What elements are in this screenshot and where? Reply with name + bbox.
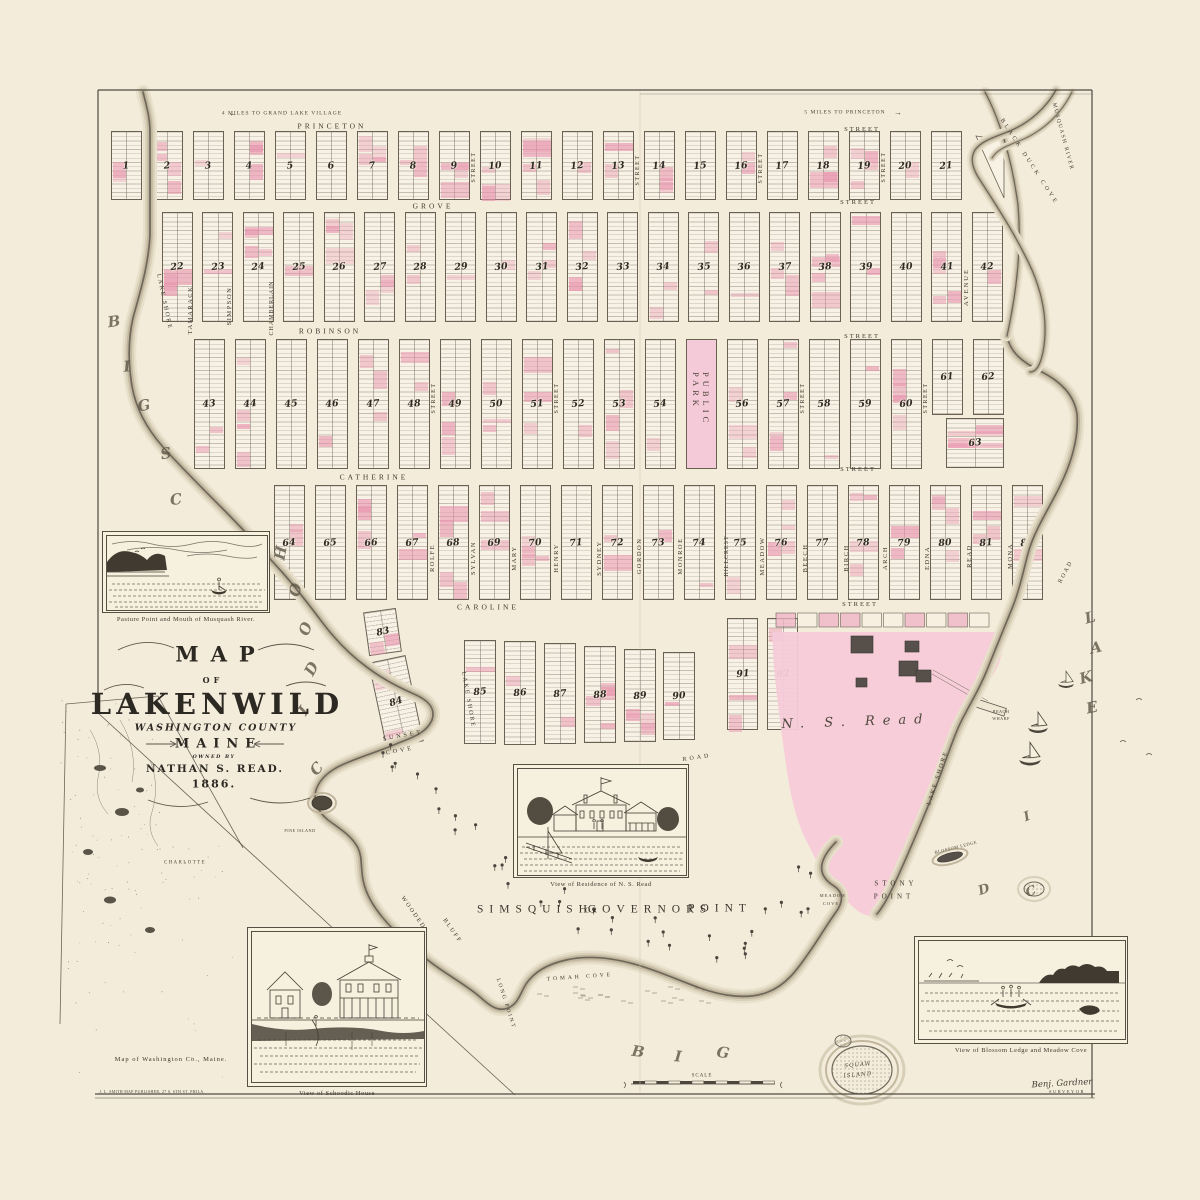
plat-block-13: 13 bbox=[603, 131, 634, 200]
plat-block-28: 28 bbox=[405, 212, 436, 322]
block-number: 35 bbox=[696, 261, 710, 273]
sold-lot-highlight bbox=[771, 242, 784, 251]
sold-lot-highlight bbox=[407, 245, 420, 252]
plat-block-24: 24 bbox=[243, 212, 274, 322]
sold-lot-highlight bbox=[360, 355, 373, 368]
block-number: 11 bbox=[529, 159, 543, 171]
sold-lot-highlight bbox=[946, 550, 959, 562]
sold-lot-highlight bbox=[850, 564, 863, 576]
block-number: 57 bbox=[776, 398, 790, 410]
sold-lot-highlight bbox=[113, 171, 126, 182]
block-number: 28 bbox=[413, 261, 427, 273]
plat-block-49: 49 bbox=[440, 339, 471, 469]
sold-lot-highlight bbox=[374, 371, 387, 389]
plat-block-39: 39 bbox=[850, 212, 881, 322]
block-number: 20 bbox=[898, 159, 912, 171]
vignette-blossom-ledge: View of Blossom Ledge and Meadow Cove bbox=[914, 936, 1128, 1044]
block-number: 56 bbox=[735, 398, 749, 410]
sold-lot-highlight bbox=[237, 424, 250, 429]
plat-block-22: 22 bbox=[162, 212, 193, 322]
plat-block-75: 75 bbox=[725, 485, 756, 600]
plat-block-80: 80 bbox=[930, 485, 961, 600]
block-number: 4 bbox=[245, 160, 253, 172]
sold-lot-highlight bbox=[786, 275, 799, 292]
sold-lot-highlight bbox=[769, 628, 782, 642]
plat-block-62: 62 bbox=[973, 339, 1004, 415]
sold-lot-highlight bbox=[399, 549, 427, 560]
sold-lot-highlight bbox=[824, 146, 837, 158]
plat-block-60: 60 bbox=[891, 339, 922, 469]
sold-lot-highlight bbox=[812, 273, 825, 282]
sold-lot-highlight bbox=[583, 251, 596, 260]
block-number: 77 bbox=[815, 536, 829, 548]
block-number: 5 bbox=[286, 160, 294, 172]
plat-block-1: 1 bbox=[111, 131, 142, 200]
sold-lot-highlight bbox=[893, 415, 906, 430]
sold-lot-highlight bbox=[414, 146, 427, 161]
block-number: 13 bbox=[611, 159, 625, 171]
sold-lot-highlight bbox=[782, 525, 795, 530]
plat-block-68: 68 bbox=[438, 485, 469, 600]
sold-lot-highlight bbox=[237, 452, 250, 467]
plat-block-14: 14 bbox=[644, 131, 675, 200]
block-number: 41 bbox=[939, 261, 953, 273]
vignette-caption: View of Blossom Ledge and Meadow Cove bbox=[955, 1047, 1087, 1054]
sold-lot-highlight bbox=[466, 667, 495, 672]
sold-lot-highlight bbox=[237, 358, 250, 365]
sold-lot-highlight bbox=[601, 723, 615, 730]
plat-block-43: 43 bbox=[194, 339, 225, 469]
plat-block-73: 73 bbox=[643, 485, 674, 600]
block-number: 84 bbox=[388, 695, 404, 709]
sold-lot-highlight bbox=[245, 227, 273, 236]
sold-lot-highlight bbox=[358, 506, 371, 520]
sold-lot-highlight bbox=[401, 352, 429, 364]
sold-lot-highlight bbox=[641, 723, 655, 735]
block-number: 64 bbox=[282, 536, 296, 548]
sold-lot-highlight bbox=[441, 182, 469, 198]
sold-lot-highlight bbox=[366, 290, 379, 305]
sold-lot-highlight bbox=[374, 412, 387, 421]
plat-block-71: 71 bbox=[561, 485, 592, 600]
sold-lot-highlight bbox=[824, 172, 837, 182]
sold-lot-highlight bbox=[579, 425, 592, 437]
sold-lot-highlight bbox=[569, 221, 582, 239]
block-number: 26 bbox=[332, 261, 346, 273]
sold-lot-highlight bbox=[729, 695, 757, 700]
block-number: 63 bbox=[968, 437, 982, 449]
plat-block-88: 88 bbox=[584, 646, 616, 743]
block-number: 73 bbox=[651, 536, 665, 548]
sold-lot-highlight bbox=[852, 216, 880, 225]
sold-lot-highlight bbox=[277, 153, 305, 158]
sold-lot-highlight bbox=[340, 223, 353, 240]
plat-block-76: 76 bbox=[766, 485, 797, 600]
block-number: 45 bbox=[284, 398, 298, 410]
plat-block-87: 87 bbox=[544, 643, 576, 744]
plat-block-72: 72 bbox=[602, 485, 633, 600]
block-number: 17 bbox=[775, 159, 789, 171]
block-number: 12 bbox=[570, 159, 584, 171]
sold-lot-highlight bbox=[850, 493, 863, 501]
block-number: 49 bbox=[448, 398, 462, 410]
sold-lot-highlight bbox=[483, 419, 511, 423]
plat-block-50: 50 bbox=[481, 339, 512, 469]
block-number: 7 bbox=[368, 160, 376, 172]
block-number: 37 bbox=[777, 261, 791, 273]
plat-block-58: 58 bbox=[809, 339, 840, 469]
sold-lot-highlight bbox=[729, 715, 742, 732]
plat-block-25: 25 bbox=[283, 212, 314, 322]
block-number: 52 bbox=[571, 398, 585, 410]
plat-block-48: 48 bbox=[399, 339, 430, 469]
plat-block-84: 84 bbox=[368, 655, 423, 749]
block-number: 76 bbox=[774, 536, 788, 548]
block-number: 78 bbox=[856, 536, 870, 548]
sold-lot-highlight bbox=[237, 410, 250, 421]
sold-lot-highlight bbox=[864, 495, 877, 500]
plat-block-26: 26 bbox=[324, 212, 355, 322]
sold-lot-highlight bbox=[442, 422, 455, 435]
sold-lot-highlight bbox=[561, 717, 575, 727]
block-number: 69 bbox=[487, 536, 501, 548]
plat-block-7: 7 bbox=[357, 131, 388, 200]
block-number: 74 bbox=[692, 536, 706, 548]
sold-lot-highlight bbox=[250, 141, 263, 155]
block-number: 1 bbox=[122, 160, 130, 172]
plat-block-41: 41 bbox=[931, 212, 962, 322]
block-number: 24 bbox=[251, 261, 265, 273]
sold-lot-highlight bbox=[483, 425, 496, 432]
plat-block-51: 51 bbox=[522, 339, 553, 469]
plat-block-11: 11 bbox=[521, 131, 552, 200]
plat-block-57: 57 bbox=[768, 339, 799, 469]
sold-lot-highlight bbox=[626, 709, 640, 721]
block-number: 89 bbox=[633, 689, 647, 701]
block-number: 18 bbox=[816, 159, 830, 171]
sold-lot-highlight bbox=[447, 275, 475, 279]
plat-block-42: 42 bbox=[972, 212, 1003, 322]
sold-lot-highlight bbox=[440, 520, 453, 537]
block-number: 48 bbox=[407, 398, 421, 410]
sold-lot-highlight bbox=[481, 492, 494, 504]
plat-block-54: 54 bbox=[645, 339, 676, 469]
vignette-caption: View of Schoodic House bbox=[299, 1090, 375, 1097]
sold-lot-highlight bbox=[506, 676, 520, 686]
plat-block-35: 35 bbox=[688, 212, 719, 322]
sold-lot-highlight bbox=[442, 437, 455, 455]
sold-lot-highlight bbox=[743, 447, 756, 457]
block-number: 30 bbox=[494, 261, 508, 273]
block-number: 87 bbox=[553, 687, 567, 699]
sold-lot-highlight bbox=[933, 296, 946, 305]
sold-lot-highlight bbox=[569, 282, 582, 291]
plat-block-8: 8 bbox=[398, 131, 429, 200]
plat-block-92: 92 bbox=[767, 618, 798, 730]
sold-lot-highlight bbox=[536, 556, 549, 561]
block-number: 86 bbox=[513, 687, 527, 699]
block-number: 79 bbox=[897, 536, 911, 548]
schoodic-house-engraving bbox=[251, 931, 425, 1083]
blossom-ledge-engraving bbox=[918, 940, 1126, 1040]
plat-block-78: 78 bbox=[848, 485, 879, 600]
block-number: 91 bbox=[735, 668, 749, 680]
plat-block-65: 65 bbox=[315, 485, 346, 600]
plat-block-21: 21 bbox=[931, 131, 962, 200]
plat-block-19: 19 bbox=[849, 131, 880, 200]
sold-lot-highlight bbox=[660, 182, 673, 190]
block-number: 38 bbox=[818, 261, 832, 273]
sold-lot-highlight bbox=[647, 438, 660, 451]
vignette-caption: Pasture Point and Mouth of Musquash Rive… bbox=[117, 616, 255, 623]
block-number: 61 bbox=[940, 371, 954, 383]
block-number: 40 bbox=[899, 261, 913, 273]
plat-block-18: 18 bbox=[808, 131, 839, 200]
sold-lot-highlight bbox=[537, 180, 550, 195]
sold-lot-highlight bbox=[664, 282, 677, 290]
plat-block-37: 37 bbox=[769, 212, 800, 322]
plat-block-38: 38 bbox=[810, 212, 841, 322]
plat-block-29: 29 bbox=[445, 212, 476, 322]
sold-lot-highlight bbox=[812, 292, 840, 308]
block-number: 36 bbox=[737, 261, 751, 273]
plat-block-46: 46 bbox=[317, 339, 348, 469]
sold-lot-highlight bbox=[606, 415, 619, 432]
plat-block-69: 69 bbox=[479, 485, 510, 600]
sold-lot-highlight bbox=[729, 425, 757, 438]
block-number: 59 bbox=[858, 398, 872, 410]
sold-lot-highlight bbox=[1014, 496, 1042, 508]
sold-lot-highlight bbox=[482, 184, 510, 201]
residence-engraving bbox=[517, 768, 687, 876]
map-canvas: 1234567891011121314151617181920212223242… bbox=[0, 0, 1200, 1200]
block-number: 88 bbox=[593, 688, 607, 700]
sold-lot-highlight bbox=[415, 382, 428, 392]
block-number: 33 bbox=[615, 261, 629, 273]
plat-block-85: 85 bbox=[464, 640, 496, 744]
sold-lot-highlight bbox=[407, 275, 420, 284]
plat-block-82: 82 bbox=[1012, 485, 1043, 600]
block-number: 2 bbox=[163, 160, 171, 172]
block-number: 50 bbox=[489, 398, 503, 410]
sold-lot-highlight bbox=[782, 500, 795, 510]
sold-lot-highlight bbox=[219, 232, 232, 239]
sold-lot-highlight bbox=[891, 548, 904, 558]
block-number: 27 bbox=[372, 261, 386, 273]
block-number: 42 bbox=[980, 261, 994, 273]
plat-block-27: 27 bbox=[364, 212, 395, 322]
plat-block-67: 67 bbox=[397, 485, 428, 600]
plat-block-77: 77 bbox=[807, 485, 838, 600]
plat-block-3: 3 bbox=[193, 131, 224, 200]
plat-block-10: 10 bbox=[480, 131, 511, 200]
block-number: 43 bbox=[202, 398, 216, 410]
plat-block-79: 79 bbox=[889, 485, 920, 600]
sold-lot-highlight bbox=[606, 349, 619, 353]
plat-block-33: 33 bbox=[607, 212, 638, 322]
plat-block-5: 5 bbox=[275, 131, 306, 200]
plat-block-91: 91 bbox=[727, 618, 758, 730]
sold-lot-highlight bbox=[386, 732, 404, 743]
sold-lot-highlight bbox=[770, 436, 783, 451]
block-number: 31 bbox=[534, 261, 548, 273]
plat-block-90: 90 bbox=[663, 652, 695, 740]
sold-lot-highlight bbox=[665, 702, 679, 706]
block-number: 29 bbox=[453, 261, 467, 273]
block-number: 65 bbox=[323, 536, 337, 548]
sold-lot-highlight bbox=[700, 583, 713, 588]
block-number: 32 bbox=[575, 261, 589, 273]
sold-lot-highlight bbox=[946, 508, 959, 524]
plat-block-31: 31 bbox=[526, 212, 557, 322]
sold-lot-highlight bbox=[851, 148, 864, 159]
block-number: 80 bbox=[938, 536, 952, 548]
sold-lot-highlight bbox=[729, 645, 757, 659]
block-number: 54 bbox=[653, 398, 667, 410]
plat-block-32: 32 bbox=[567, 212, 598, 322]
plat-block-23: 23 bbox=[202, 212, 233, 322]
plat-block-4: 4 bbox=[234, 131, 265, 200]
sold-lot-highlight bbox=[851, 181, 864, 189]
plat-block-53: 53 bbox=[604, 339, 635, 469]
plat-block-70: 70 bbox=[520, 485, 551, 600]
plat-block-9: 9 bbox=[439, 131, 470, 200]
sold-lot-highlight bbox=[786, 291, 799, 296]
plat-block-63: 63 bbox=[946, 418, 1004, 468]
block-number: 72 bbox=[610, 536, 624, 548]
plat-block-52: 52 bbox=[563, 339, 594, 469]
block-number: 71 bbox=[569, 536, 583, 548]
block-number: 60 bbox=[899, 398, 913, 410]
sold-lot-highlight bbox=[524, 357, 552, 373]
block-number: 62 bbox=[981, 371, 995, 383]
sold-lot-highlight bbox=[440, 572, 453, 586]
block-number: 15 bbox=[693, 159, 707, 171]
sold-lot-highlight bbox=[1014, 549, 1042, 562]
block-number: 9 bbox=[450, 160, 458, 172]
sold-lot-highlight bbox=[381, 280, 394, 294]
sold-lot-highlight bbox=[454, 582, 467, 598]
block-number: 66 bbox=[364, 536, 378, 548]
plat-block-2: 2 bbox=[152, 131, 183, 200]
plat-block-20: 20 bbox=[890, 131, 921, 200]
block-number: 92 bbox=[775, 668, 789, 680]
vignette-pasture-point: Pasture Point and Mouth of Musquash Rive… bbox=[102, 531, 270, 613]
plat-block-36: 36 bbox=[729, 212, 760, 322]
sold-lot-highlight bbox=[605, 143, 633, 150]
plat-block-64: 64 bbox=[274, 485, 305, 600]
block-number: 75 bbox=[733, 536, 747, 548]
block-number: 21 bbox=[939, 159, 953, 171]
block-number: 16 bbox=[734, 159, 748, 171]
sold-lot-highlight bbox=[606, 441, 619, 458]
plat-block-12: 12 bbox=[562, 131, 593, 200]
plat-block-74: 74 bbox=[684, 485, 715, 600]
block-number: 22 bbox=[170, 261, 184, 273]
block-number: 68 bbox=[446, 536, 460, 548]
block-number: 10 bbox=[488, 159, 502, 171]
plat-block-59: 59 bbox=[850, 339, 881, 469]
sold-lot-highlight bbox=[259, 249, 272, 256]
sold-lot-highlight bbox=[948, 431, 1003, 436]
block-number: 90 bbox=[672, 690, 686, 702]
block-number: 46 bbox=[325, 398, 339, 410]
pasture-engraving bbox=[106, 535, 268, 611]
block-number: 23 bbox=[210, 261, 224, 273]
plat-block-56: 56 bbox=[727, 339, 758, 469]
sold-lot-highlight bbox=[326, 219, 339, 229]
sold-lot-highlight bbox=[543, 243, 556, 250]
block-number: 53 bbox=[612, 398, 626, 410]
plat-block-61: 61 bbox=[932, 339, 963, 415]
block-number: 25 bbox=[291, 261, 305, 273]
block-number: 44 bbox=[243, 398, 257, 410]
plat-block-6: 6 bbox=[316, 131, 347, 200]
plat-block-44: 44 bbox=[235, 339, 266, 469]
sold-lot-highlight bbox=[784, 342, 797, 348]
sold-lot-highlight bbox=[973, 511, 1001, 520]
sold-lot-highlight bbox=[523, 141, 551, 157]
block-number: 47 bbox=[366, 398, 380, 410]
sold-lot-highlight bbox=[948, 291, 961, 302]
sold-lot-highlight bbox=[210, 427, 223, 433]
block-number: 82 bbox=[1020, 536, 1034, 548]
plat-block-86: 86 bbox=[504, 641, 536, 745]
sold-lot-highlight bbox=[373, 670, 393, 691]
block-number: 58 bbox=[817, 398, 831, 410]
sold-lot-highlight bbox=[866, 366, 879, 371]
public-park-label: PUBLIC PARK bbox=[691, 372, 711, 436]
block-number: 81 bbox=[979, 536, 993, 548]
sold-lot-highlight bbox=[825, 455, 838, 459]
sold-lot-highlight bbox=[705, 241, 718, 253]
block-number: 8 bbox=[409, 160, 417, 172]
plat-block-89: 89 bbox=[624, 649, 656, 742]
sold-lot-highlight bbox=[891, 526, 919, 538]
sold-lot-highlight bbox=[319, 436, 332, 447]
sold-lot-highlight bbox=[359, 136, 372, 152]
sold-lot-highlight bbox=[196, 446, 209, 453]
vignette-schoodic-house: View of Schoodic House bbox=[247, 927, 427, 1087]
plat-block-34: 34 bbox=[648, 212, 679, 322]
sold-lot-highlight bbox=[524, 423, 537, 434]
vignette-residence: View of Residence of N. S. Read bbox=[513, 764, 689, 878]
plat-block-45: 45 bbox=[276, 339, 307, 469]
sold-lot-highlight bbox=[290, 524, 303, 532]
sold-lot-highlight bbox=[650, 307, 663, 319]
block-number: 85 bbox=[473, 686, 487, 698]
sold-lot-highlight bbox=[245, 246, 258, 258]
block-number: 34 bbox=[656, 261, 670, 273]
sold-lot-highlight bbox=[727, 577, 740, 594]
sold-lot-highlight bbox=[483, 382, 496, 395]
sold-lot-highlight bbox=[932, 495, 945, 510]
public-park: PUBLIC PARK bbox=[686, 339, 717, 469]
sold-lot-highlight bbox=[731, 293, 759, 298]
block-number: 67 bbox=[405, 536, 419, 548]
sold-lot-highlight bbox=[705, 290, 718, 295]
block-number: 3 bbox=[204, 160, 212, 172]
sold-lot-highlight bbox=[988, 270, 1001, 284]
sold-lot-highlight bbox=[604, 555, 632, 572]
plat-block-47: 47 bbox=[358, 339, 389, 469]
sold-lot-highlight bbox=[154, 142, 167, 151]
plat-block-16: 16 bbox=[726, 131, 757, 200]
block-number: 6 bbox=[327, 160, 335, 172]
sold-lot-highlight bbox=[168, 181, 181, 194]
block-number: 14 bbox=[652, 159, 666, 171]
plat-block-15: 15 bbox=[685, 131, 716, 200]
